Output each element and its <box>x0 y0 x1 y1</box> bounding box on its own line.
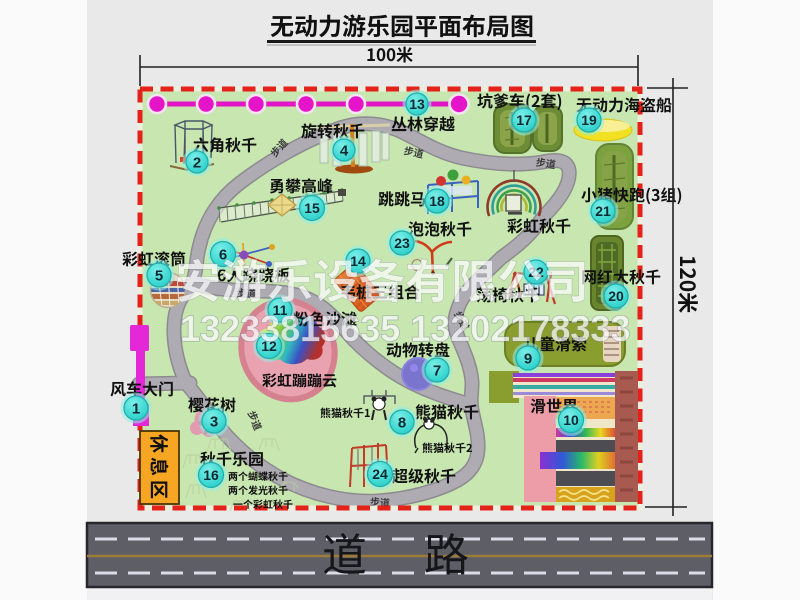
svg-text:10: 10 <box>563 412 579 428</box>
svg-text:15: 15 <box>304 200 320 216</box>
svg-text:8: 8 <box>398 414 406 431</box>
svg-text:1: 1 <box>132 400 140 417</box>
svg-text:18: 18 <box>429 193 445 209</box>
svg-text:17: 17 <box>516 112 532 128</box>
svg-text:23: 23 <box>394 235 410 251</box>
svg-text:21: 21 <box>595 203 611 219</box>
svg-text:2: 2 <box>193 154 201 171</box>
svg-text:13233815635 13202178333: 13233815635 13202178333 <box>180 308 630 349</box>
svg-text:5: 5 <box>155 267 163 284</box>
svg-text:14: 14 <box>350 253 366 269</box>
svg-text:13: 13 <box>409 96 425 112</box>
svg-text:9: 9 <box>524 350 532 367</box>
svg-text:7: 7 <box>433 362 441 379</box>
svg-text:19: 19 <box>581 112 597 128</box>
svg-text:24: 24 <box>372 466 388 482</box>
svg-text:4: 4 <box>340 142 349 159</box>
svg-text:20: 20 <box>608 288 624 304</box>
svg-text:16: 16 <box>203 467 219 483</box>
svg-text:3: 3 <box>210 413 218 430</box>
